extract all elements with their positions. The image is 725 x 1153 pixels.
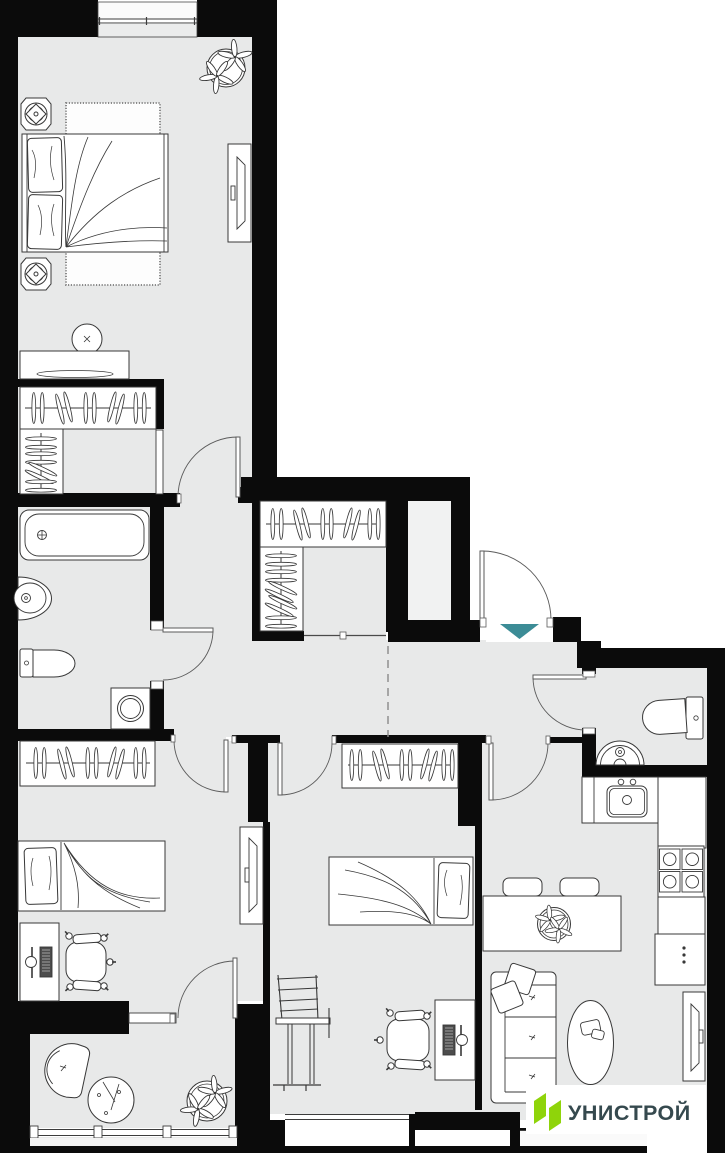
svg-text:УНИСТРОЙ: УНИСТРОЙ xyxy=(568,1100,691,1125)
